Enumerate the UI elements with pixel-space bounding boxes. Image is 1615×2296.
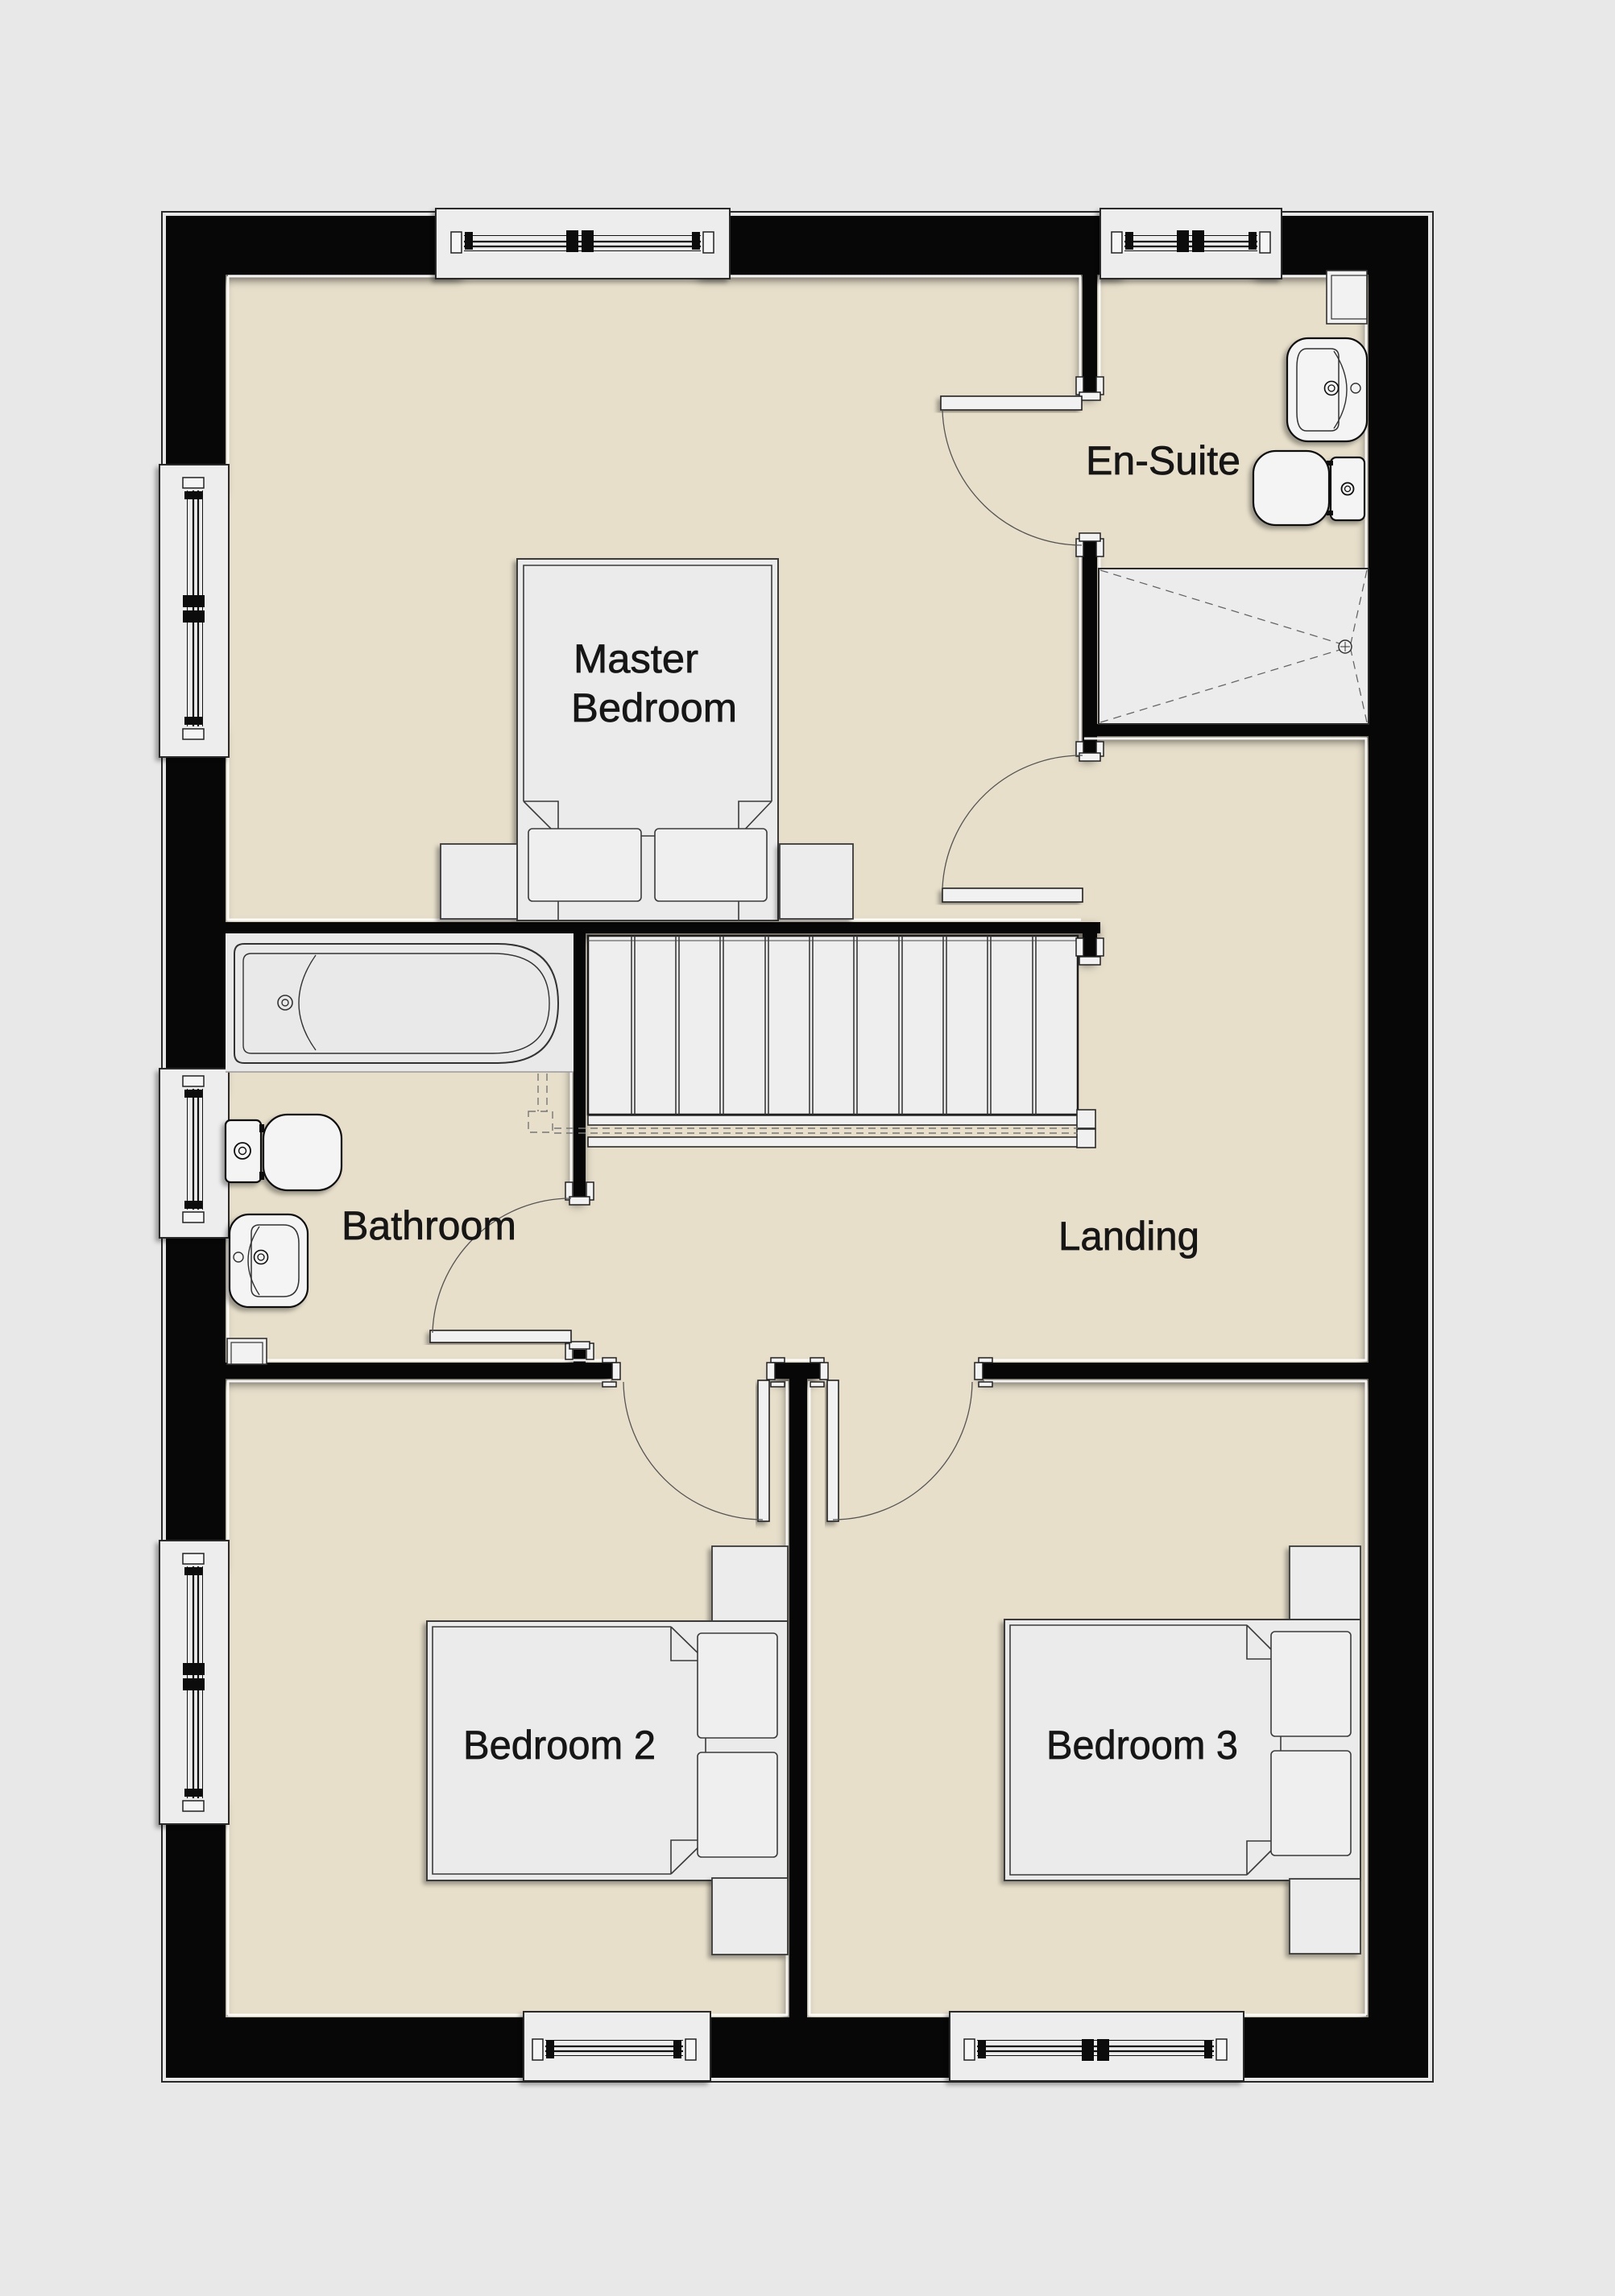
svg-text:Bedroom 2: Bedroom 2 (463, 1723, 656, 1768)
svg-text:Bedroom 3: Bedroom 3 (1046, 1723, 1238, 1768)
svg-text:Master: Master (574, 636, 698, 681)
svg-text:Landing: Landing (1058, 1214, 1199, 1259)
svg-text:Bedroom: Bedroom (571, 685, 737, 730)
svg-text:En-Suite: En-Suite (1086, 438, 1240, 483)
svg-text:Bathroom: Bathroom (342, 1203, 516, 1248)
